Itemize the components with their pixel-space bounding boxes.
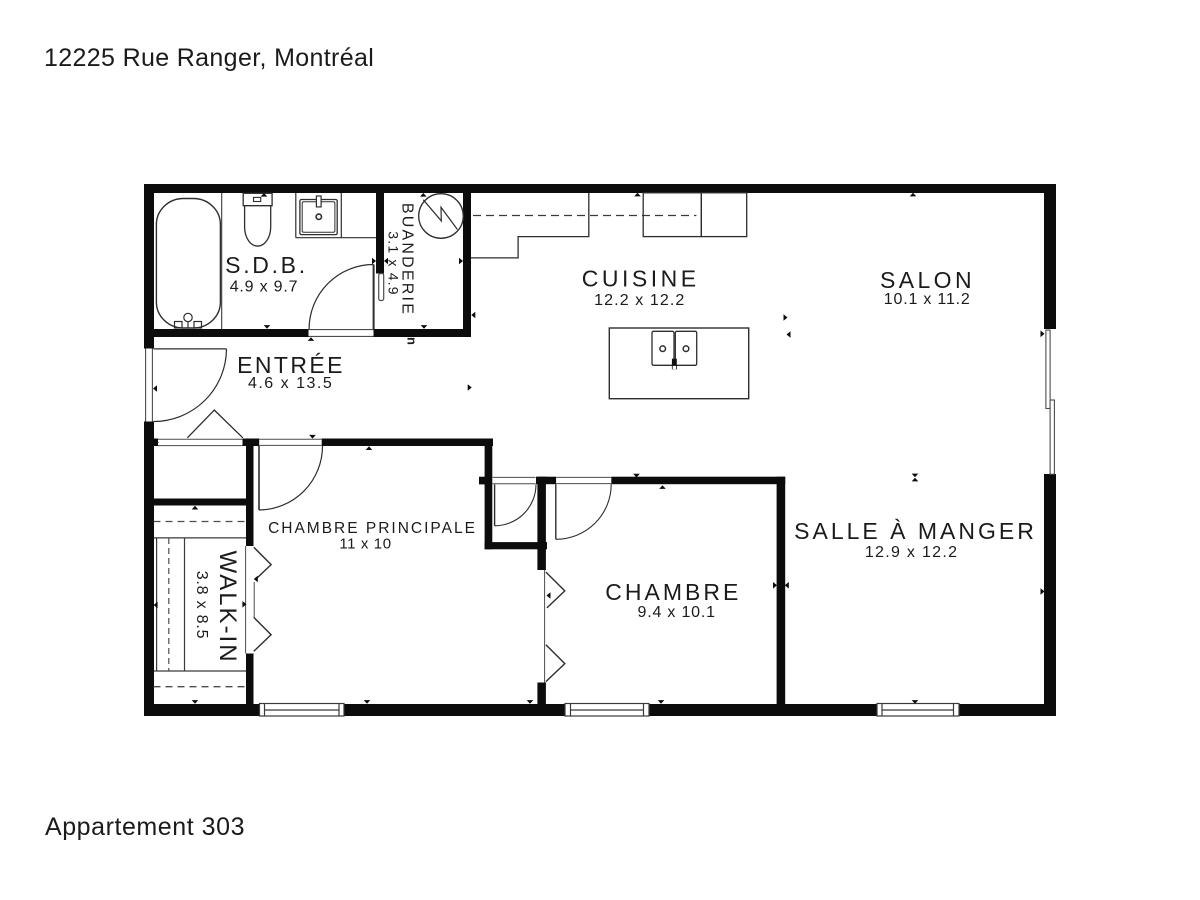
svg-text:SALON: SALON [880, 267, 975, 293]
svg-text:11 x 10: 11 x 10 [339, 536, 391, 553]
svg-text:9.4 x 10.1: 9.4 x 10.1 [638, 604, 716, 621]
svg-text:CUISINE: CUISINE [582, 266, 700, 292]
svg-text:S.D.B.: S.D.B. [225, 252, 308, 278]
svg-text:CHAMBRE: CHAMBRE [605, 579, 741, 605]
svg-text:3.1 x 4.9: 3.1 x 4.9 [386, 231, 402, 296]
svg-text:12.2 x 12.2: 12.2 x 12.2 [594, 292, 685, 309]
svg-text:CHAMBRE PRINCIPALE: CHAMBRE PRINCIPALE [268, 520, 477, 537]
svg-text:12225 Rue Ranger, Montréal: 12225 Rue Ranger, Montréal [44, 44, 374, 72]
svg-text:10.1 x 11.2: 10.1 x 11.2 [884, 291, 971, 308]
svg-text:12.9 x 12.2: 12.9 x 12.2 [865, 544, 958, 561]
svg-text:n: n [405, 337, 420, 345]
svg-text:SALLE À MANGER: SALLE À MANGER [794, 518, 1037, 544]
svg-text:4.9 x 9.7: 4.9 x 9.7 [230, 279, 299, 296]
svg-text:4.6 x 13.5: 4.6 x 13.5 [248, 375, 333, 392]
svg-text:3.8 x 8.5: 3.8 x 8.5 [193, 571, 210, 640]
svg-text:Appartement 303: Appartement 303 [45, 813, 245, 841]
svg-text:WALK-IN: WALK-IN [214, 550, 241, 663]
